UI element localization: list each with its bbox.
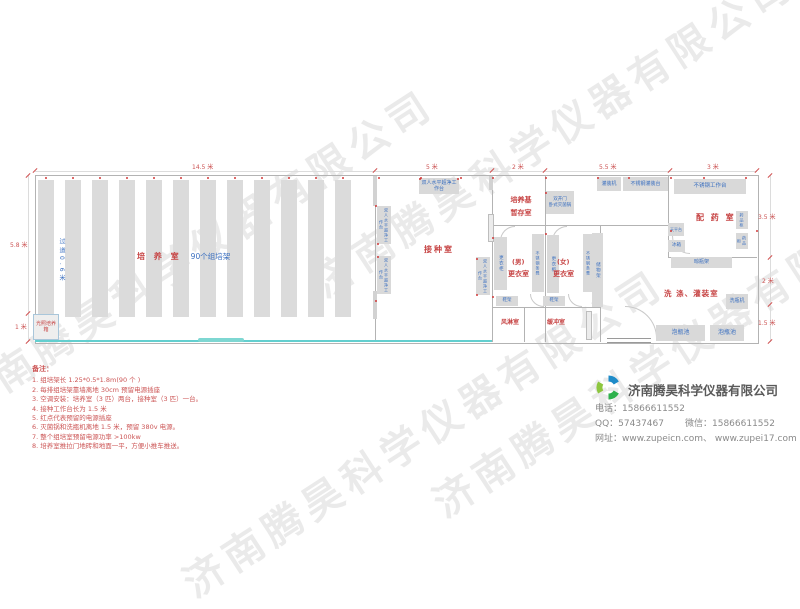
power-outlet-dots <box>378 177 380 179</box>
culture-room-glass-wall <box>35 340 492 342</box>
culture-rack <box>38 180 54 317</box>
sterilizer-line2: 卧式灭菌锅 <box>549 203 572 209</box>
notes-title: 备注： <box>32 365 202 374</box>
wall <box>492 225 668 226</box>
light-incubator: 光照培养箱 <box>33 314 59 340</box>
dim-label: 2 米 <box>762 276 774 285</box>
notes-block: 备注： 1. 组培架长 1.25*0.5*1.8m(90 个 ) 2. 每排组培… <box>32 365 202 452</box>
dim-label: 1 米 <box>15 322 27 331</box>
dim-label: 5.8 米 <box>10 240 27 249</box>
room-label-medium-storage: 培养基 暂存室 <box>499 194 543 220</box>
note-item: 7. 整个组培室预留电源功率 >100kw <box>32 433 202 442</box>
medium-storage-line2: 暂存室 <box>499 207 543 220</box>
medicine-cabinet: 药品柜 <box>736 211 748 229</box>
room-label-pharmacy: 配 药 室 <box>696 212 736 223</box>
culture-rack <box>308 180 324 317</box>
wall-segment <box>373 176 377 206</box>
sliding-door <box>198 338 244 342</box>
dimension-line-right <box>770 175 771 342</box>
room-label-male: (男) <box>512 256 524 266</box>
dim-label: 2 米 <box>512 162 524 171</box>
room-label-male-2: 更衣室 <box>508 269 529 279</box>
wall <box>492 307 600 308</box>
filling-table: 不锈钢灌装台 <box>623 177 668 191</box>
company-name: 济南腾昊科学仪器有限公司 <box>628 380 778 399</box>
filling-machine: 灌装机 <box>597 177 621 191</box>
company-logo-icon <box>595 374 622 401</box>
shoe-rack: 鞋架 <box>496 296 518 306</box>
medicine-cabinet: 药品柜 <box>736 233 748 249</box>
dim-label: 5.5 米 <box>599 162 616 171</box>
locker: 更衣柜 <box>494 237 507 290</box>
note-item: 4. 接种工作台长为 1.5 米 <box>32 405 202 414</box>
culture-rack <box>92 180 108 317</box>
wall-segment <box>373 291 377 319</box>
room-label-buffer: 缓冲室 <box>547 317 565 326</box>
room-label-female-2: 更衣室 <box>553 269 574 279</box>
bottle-washer: 洗瓶机 <box>726 294 748 309</box>
power-outlet-dots <box>375 205 377 207</box>
wall <box>524 307 525 342</box>
culture-rack <box>254 180 270 317</box>
laminar-flow-bench: 双人水平超净工作台 <box>476 257 490 295</box>
dim-label: 3.5 米 <box>758 212 775 221</box>
dim-label: 5 米 <box>426 162 438 171</box>
culture-rack <box>119 180 135 317</box>
power-outlet-dots <box>45 177 47 179</box>
company-wechat: 微信：15866611552 <box>685 416 775 429</box>
dim-tick <box>768 339 773 344</box>
room-label-female: (女) <box>557 256 569 266</box>
dim-tick <box>26 339 31 344</box>
laminar-flow-bench: 双人水平超净工作台 <box>419 178 459 194</box>
room-label-washing: 洗 涤、灌装室 <box>664 288 719 299</box>
double-door-sterilizer: 双开门 卧式灭菌锅 <box>546 191 574 214</box>
culture-rack <box>281 180 297 317</box>
company-phone: 电话：15866611552 <box>595 401 685 414</box>
note-item: 1. 组培架长 1.25*0.5*1.8m(90 个 ) <box>32 376 202 385</box>
note-item: 8. 培养室推拉门地砖和地面一平，方便小推车推送。 <box>32 442 202 451</box>
wall-segment <box>489 176 493 190</box>
laminar-flow-bench: 双人水平超净工作台 <box>377 206 391 244</box>
dimension-line-top <box>35 171 757 172</box>
company-website: 网址：www.zupeicn.com、 www.zupei17.com <box>595 431 797 444</box>
note-item: 6. 灭菌锅和洗瓶机离地 1.5 米，预留 380v 电源。 <box>32 423 202 432</box>
room-label-air-shower: 风淋室 <box>501 317 519 326</box>
room-label-culture: 培 养 室 <box>137 252 182 261</box>
bottom-door-symbol <box>607 338 651 343</box>
dim-label: 14.5 米 <box>192 162 213 171</box>
note-item: 3. 空调安装：培养室（3 匹）两台，接种室（3 匹）一台。 <box>32 395 202 404</box>
dim-label: 1.5 米 <box>758 318 775 327</box>
racks-count-label: 90个组培架 <box>191 252 231 261</box>
culture-room-label: 培 养 室 90个组培架 <box>137 244 230 263</box>
dim-tick <box>755 168 760 173</box>
room-label-inoculation: 接种室 <box>424 244 454 255</box>
shoe-rack: 鞋架 <box>543 296 565 306</box>
soaking-pool: 泡瓶池 <box>710 325 744 341</box>
soaking-pool: 泡瓶池 <box>656 325 705 341</box>
note-item: 2. 每排组培架靠墙离地 30cm 预留电源插座 <box>32 386 202 395</box>
laminar-flow-bench: 双人水平超净工作台 <box>377 256 391 294</box>
steel-bench: 不锈钢条凳 <box>532 234 544 292</box>
storage-rack: 储物架 <box>592 233 603 307</box>
fridge: 冰箱 <box>668 240 685 252</box>
wall <box>492 175 493 342</box>
culture-rack <box>335 180 351 317</box>
company-qq: QQ：57437467 <box>595 416 664 429</box>
aisle-label: 过道0.6米 <box>57 238 66 284</box>
dim-label: 3 米 <box>707 162 719 171</box>
culture-rack <box>65 180 81 317</box>
medium-storage-line1: 培养基 <box>499 194 543 207</box>
balance-table: 天平台 <box>668 223 684 236</box>
door-leaf <box>586 311 592 340</box>
dimension-line-left <box>28 175 29 342</box>
steel-worktable: 不锈钢工作台 <box>674 179 746 194</box>
bottle-dry-rack: 晾瓶架 <box>671 257 732 268</box>
